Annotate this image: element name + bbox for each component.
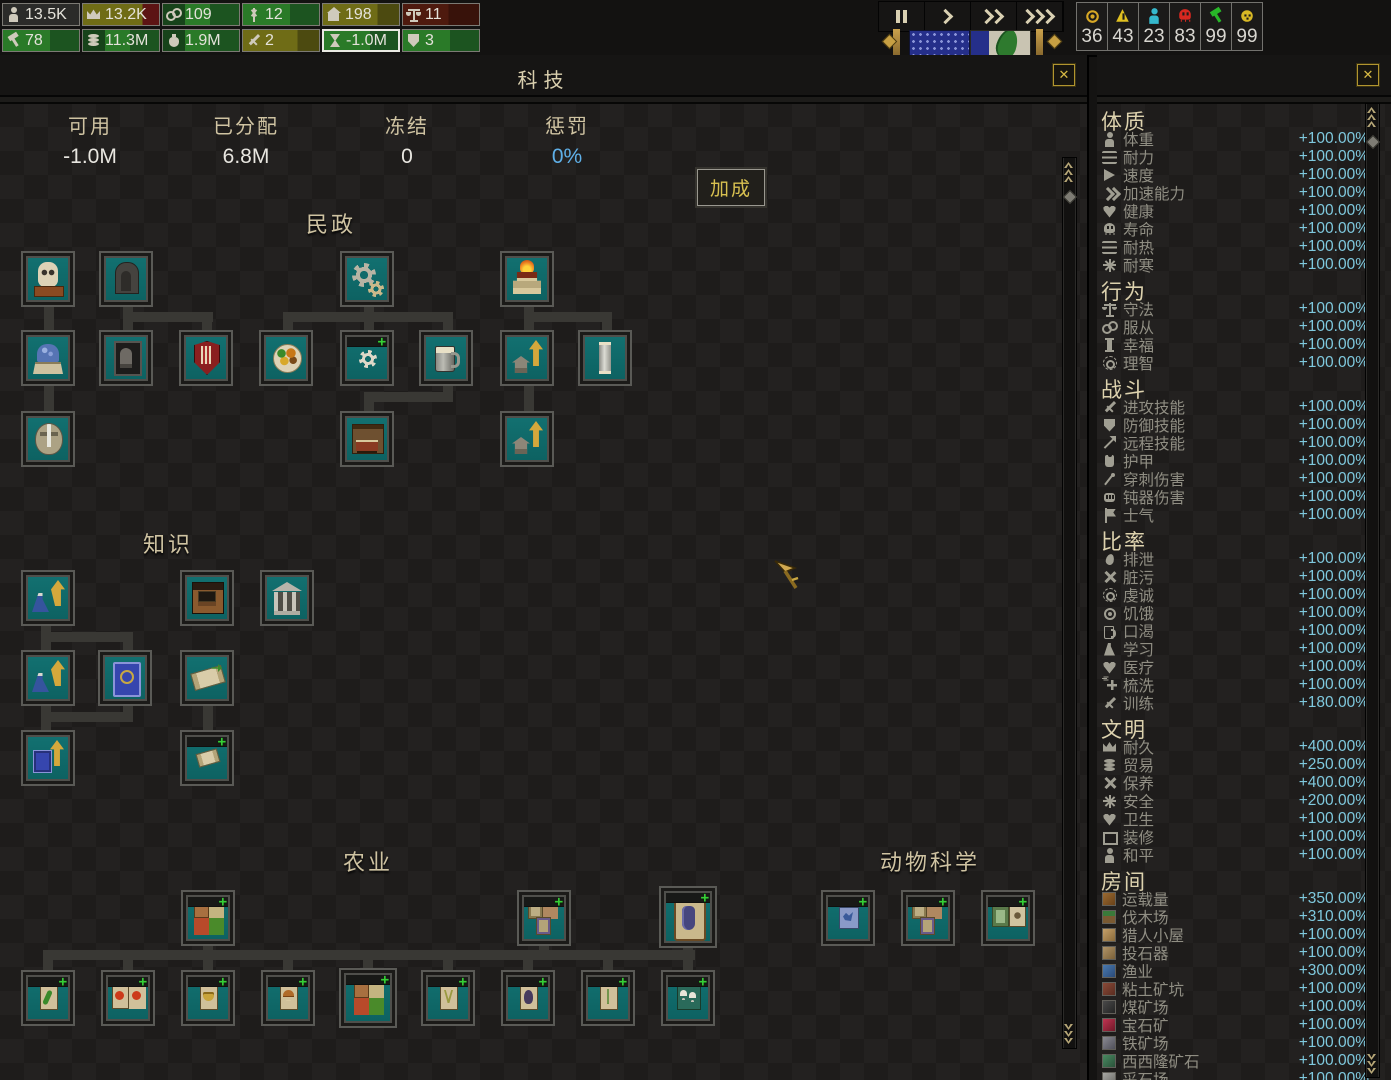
sun-icon	[1102, 356, 1117, 371]
resource-value: 198	[345, 6, 372, 24]
resource-value: 12	[265, 6, 283, 24]
resource-value: 13.5K	[25, 6, 67, 24]
rings-icon	[1102, 320, 1117, 335]
unlock-plus-icon: +	[139, 975, 147, 990]
fast-icon[interactable]	[971, 2, 1017, 31]
bonus-label: 理智	[1123, 352, 1154, 374]
tech-node-home-upgrade-2[interactable]	[500, 411, 554, 467]
tree-connector	[123, 956, 133, 970]
shield-heart-icon	[406, 33, 421, 48]
sidebar-section-房间: 房间	[1097, 866, 1391, 890]
bonus-value: +100.00%	[1299, 658, 1369, 676]
tech-node-animal-pack[interactable]: +	[901, 890, 955, 946]
research-boost-1-icon	[29, 578, 67, 618]
tech-panel-header: 科技 ✕	[0, 55, 1087, 97]
banner-diamond-right	[1047, 34, 1063, 50]
bonus-row: 耐寒+100.00%	[1097, 256, 1391, 274]
sisilon-room-icon	[1102, 1054, 1116, 1068]
sidebar-scrollbar[interactable]	[1365, 103, 1380, 1078]
tech-node-big-crop[interactable]: +	[659, 886, 717, 948]
stat-1: 已分配6.8M	[176, 110, 316, 169]
research-boost-2-icon	[29, 658, 67, 698]
bonus-value: +250.00%	[1299, 756, 1369, 774]
stat-value: -1.0M	[20, 145, 160, 169]
sidebar-section-体质: 体质	[1097, 106, 1391, 130]
unlock-plus-icon: +	[378, 335, 386, 350]
bonus-value: +100.00%	[1299, 1034, 1369, 1052]
scales-icon	[406, 7, 421, 22]
cuisine-icon	[267, 338, 305, 378]
panel-title: 科技	[0, 64, 1087, 93]
tree-connector	[683, 956, 693, 970]
aster-icon	[1102, 258, 1117, 273]
tree-connector	[443, 316, 453, 330]
machinery-icon	[348, 259, 386, 299]
bonus-value: +100.00%	[1299, 622, 1369, 640]
bonus-value: +100.00%	[1299, 980, 1369, 998]
school-icon	[188, 578, 226, 618]
frame-icon	[1102, 830, 1117, 845]
happiness-icon	[1239, 8, 1255, 24]
bonus-value: +100.00%	[1299, 488, 1369, 506]
tech-node-book-upgrade[interactable]	[21, 730, 75, 786]
bonus-value: +100.00%	[1299, 416, 1369, 434]
tree-connector	[364, 392, 453, 402]
sidebar-section-行为: 行为	[1097, 276, 1391, 300]
person-icon	[6, 7, 21, 22]
resource-hammer[interactable]: 78	[2, 29, 80, 52]
tech-node-cuisine[interactable]	[259, 330, 313, 386]
heart-icon	[1102, 812, 1117, 827]
bonus-value: +100.00%	[1299, 1016, 1369, 1034]
fountain-icon	[29, 338, 67, 378]
bonus-value: +100.00%	[1299, 506, 1369, 524]
tech-node-crop-grain[interactable]: +	[181, 970, 235, 1026]
altar-icon	[508, 259, 546, 299]
tech-node-animal-blue[interactable]: +	[821, 890, 875, 946]
bonus-row: 理智+100.00%	[1097, 354, 1391, 372]
wood-room-icon	[1102, 910, 1116, 924]
unlock-plus-icon: +	[555, 895, 563, 910]
alert-count: 36	[1077, 26, 1107, 48]
alert-count: 43	[1108, 26, 1138, 48]
tech-node-furniture[interactable]	[340, 411, 394, 467]
tech-node-crop-mushroom[interactable]: +	[261, 970, 315, 1026]
sidebar-section-文明: 文明	[1097, 714, 1391, 738]
tech-node-library[interactable]	[260, 570, 314, 626]
tech-node-crop-mix[interactable]: +	[339, 968, 397, 1028]
tree-connector	[524, 386, 534, 411]
section-title-民政: 民政	[306, 207, 356, 239]
gem-room-icon	[1102, 1018, 1116, 1032]
resource-person[interactable]: 13.5K	[2, 3, 80, 26]
crown-icon	[86, 7, 101, 22]
tech-node-throne[interactable]	[99, 251, 153, 307]
sidebar-close-icon[interactable]: ✕	[1357, 64, 1379, 86]
resource-value: 3	[425, 32, 434, 50]
tree-connector	[602, 316, 612, 330]
bonus-value: +100.00%	[1299, 550, 1369, 568]
bonus-value: +100.00%	[1299, 998, 1369, 1016]
section-title-知识: 知识	[143, 527, 193, 559]
plus-icon	[1102, 678, 1117, 693]
tree-connector	[203, 956, 213, 970]
bonus-value: +350.00%	[1299, 890, 1369, 908]
warning-icon	[1115, 8, 1131, 24]
resource-value: 1.9M	[185, 32, 221, 50]
citizen-icon	[1146, 8, 1162, 24]
stat-2: 冻结0	[337, 110, 477, 169]
sidebar-scroll-up-icon[interactable]	[1367, 107, 1376, 127]
tech-node-scroll-unlock[interactable]: +	[180, 730, 234, 786]
bonus-value: +400.00%	[1299, 774, 1369, 792]
tree-connector	[283, 316, 293, 330]
flag-icon	[1102, 508, 1117, 523]
red-banner-icon	[187, 338, 225, 378]
bonus-row: 和平+100.00%	[1097, 846, 1391, 864]
tree-connector	[443, 956, 453, 970]
bonus-value: +100.00%	[1299, 470, 1369, 488]
tech-node-animal-scrolls[interactable]: +	[981, 890, 1035, 946]
tech-node-masks[interactable]	[21, 251, 75, 307]
top-resource-bar: 13.5K13.2K1091219811 7811.3M1.9M2-1.0M3 …	[0, 0, 1391, 57]
bonus-value: +100.00%	[1299, 398, 1369, 416]
unlock-plus-icon: +	[59, 975, 67, 990]
bonus-value: +100.00%	[1299, 130, 1369, 148]
death-skull-icon	[1177, 8, 1193, 24]
needle-icon	[1102, 472, 1117, 487]
resource-value: 109	[185, 6, 212, 24]
tech-node-fountain[interactable]	[21, 330, 75, 386]
tech-node-guard[interactable]	[21, 411, 75, 467]
tech-node-research-boost-1[interactable]	[21, 570, 75, 626]
tech-node-crops-pack[interactable]: +	[181, 890, 235, 946]
resource-crown[interactable]: 13.2K	[82, 3, 160, 26]
coin-medal-icon	[1084, 8, 1100, 24]
shield-icon	[1102, 418, 1117, 433]
unlock-plus-icon: +	[859, 895, 867, 910]
drop-icon	[1102, 552, 1117, 567]
mug-icon	[1102, 624, 1117, 639]
bonus-value: +100.00%	[1299, 354, 1369, 372]
heart-icon	[1102, 660, 1117, 675]
hunter-room-icon	[1102, 928, 1116, 942]
bonus-value: +100.00%	[1299, 676, 1369, 694]
pillar-icon	[586, 338, 624, 378]
bonus-value: +100.00%	[1299, 604, 1369, 622]
resource-value: 11.3M	[105, 32, 148, 50]
sidebar-scroll-down-icon[interactable]	[1367, 1054, 1376, 1074]
unlock-plus-icon: +	[939, 895, 947, 910]
bonus-value: +100.00%	[1299, 846, 1369, 864]
tech-node-school[interactable]	[180, 570, 234, 626]
sidebar-header: ✕	[1097, 55, 1391, 97]
stat-3: 惩罚0%	[497, 110, 637, 169]
bonus-value: +100.00%	[1299, 828, 1369, 846]
armor-icon	[1102, 454, 1117, 469]
speed-controls	[878, 1, 1064, 32]
resource-shield-heart[interactable]: 3	[402, 29, 480, 52]
alert-coin-medal[interactable]: 36	[1076, 2, 1108, 51]
tech-panel: 科技 ✕ 可用-1.0M已分配6.8M冻结0惩罚0% 加成 民政知识农业动物科学…	[0, 55, 1089, 1080]
tool-icon	[1208, 8, 1224, 24]
tech-node-altar[interactable]	[500, 251, 554, 307]
banner-flag-leaf	[970, 30, 1031, 57]
tree-connector	[41, 712, 133, 722]
resource-value: 2	[265, 32, 274, 50]
tri-icon	[1102, 168, 1117, 183]
scale-icon	[1102, 302, 1117, 317]
tree-connector	[123, 705, 133, 720]
tree-connector	[364, 398, 374, 411]
sidebar-scroll-thumb[interactable]	[1365, 135, 1379, 149]
crate-room-icon	[1102, 892, 1116, 906]
bonus-list: 体质体重+100.00%耐力+100.00%速度+100.00%加速能力+100…	[1097, 104, 1391, 1080]
sword-icon	[1102, 400, 1117, 415]
waves-icon	[1102, 151, 1117, 164]
tech-node-crop-cucumber[interactable]: +	[21, 970, 75, 1026]
tree-connector	[523, 956, 533, 970]
resource-value: 11	[425, 6, 442, 24]
bonus-value: +100.00%	[1299, 166, 1369, 184]
pause-icon[interactable]	[879, 2, 925, 31]
unlock-plus-icon: +	[219, 895, 227, 910]
tree-connector	[283, 956, 293, 970]
chev2-icon	[1102, 186, 1117, 201]
tech-node-herb-pack[interactable]: +	[517, 890, 571, 946]
fist-icon	[1102, 490, 1117, 505]
resource-coins[interactable]: 11.3M	[82, 29, 160, 52]
resource-house[interactable]: 198	[322, 3, 400, 26]
bonus-value: +310.00%	[1299, 908, 1369, 926]
bonus-value: +100.00%	[1299, 810, 1369, 828]
tech-node-crop-aubergine[interactable]: +	[501, 970, 555, 1026]
resource-scales[interactable]: 11	[402, 3, 480, 26]
tome-icon	[106, 658, 144, 698]
bonus-value: +100.00%	[1299, 202, 1369, 220]
bonus-value: +100.00%	[1299, 944, 1369, 962]
resource-value: -1.0M	[346, 32, 387, 50]
section-title-动物科学: 动物科学	[880, 845, 980, 877]
unlock-plus-icon: +	[619, 975, 627, 990]
scroll-icon	[188, 658, 226, 698]
iron-room-icon	[1102, 1036, 1116, 1050]
unlock-plus-icon: +	[381, 973, 389, 988]
throne-icon	[107, 259, 145, 299]
scroll-down-icon[interactable]	[1064, 1024, 1073, 1044]
bonus-label: 采石场	[1122, 1068, 1169, 1080]
tech-node-crop-fungi[interactable]: +	[661, 970, 715, 1026]
coal-room-icon	[1102, 1000, 1116, 1014]
resource-value: 78	[25, 32, 43, 50]
hammer-icon	[6, 33, 21, 48]
alert-count: 23	[1139, 26, 1169, 48]
chain-icon	[166, 7, 181, 22]
stat-0: 可用-1.0M	[20, 110, 160, 169]
sword-icon	[246, 33, 261, 48]
bonus-value: +100.00%	[1299, 256, 1369, 274]
unlock-plus-icon: +	[1019, 895, 1027, 910]
brewing-icon	[427, 338, 465, 378]
tech-node-crop-herb[interactable]: +	[421, 970, 475, 1026]
tree-connector	[41, 632, 133, 642]
tree-scrollbar[interactable]	[1062, 157, 1077, 1049]
scroll-up-icon[interactable]	[1064, 162, 1073, 182]
resource-wheat[interactable]: 12	[242, 3, 320, 26]
coins-icon	[86, 33, 101, 48]
house-icon	[326, 7, 341, 22]
alert-count: 99	[1201, 26, 1231, 48]
fish-room-icon	[1102, 964, 1116, 978]
resource-pouch[interactable]: 1.9M	[162, 29, 240, 52]
tree-connector	[123, 312, 213, 322]
unlock-plus-icon: +	[218, 735, 226, 750]
resource-chain[interactable]: 109	[162, 3, 240, 26]
bonus-label: 训练	[1123, 692, 1154, 714]
play-icon[interactable]	[925, 2, 971, 31]
book-upgrade-icon	[29, 738, 67, 778]
tree-connector	[202, 316, 212, 330]
coin-icon	[1102, 606, 1117, 621]
x-icon	[1102, 570, 1117, 585]
bonus-value: +100.00%	[1299, 300, 1369, 318]
bonus-value: +100.00%	[1299, 926, 1369, 944]
section-title-农业: 农业	[343, 845, 393, 877]
wheat-icon	[246, 7, 261, 22]
skull-icon	[1102, 222, 1117, 237]
bonus-label: 士气	[1123, 504, 1154, 526]
tech-node-red-banner[interactable]	[179, 330, 233, 386]
alert-tool[interactable]: 99	[1200, 2, 1232, 51]
bonus-value: +100.00%	[1299, 434, 1369, 452]
bonus-value: +100.00%	[1299, 184, 1369, 202]
unlock-plus-icon: +	[219, 975, 227, 990]
alert-citizen[interactable]: 23	[1138, 2, 1170, 51]
x-icon	[1102, 776, 1117, 791]
hourglass-icon	[327, 33, 342, 48]
home-upgrade-2-icon	[508, 419, 546, 459]
alert-count: 83	[1170, 26, 1200, 48]
tech-node-research-boost-2[interactable]	[21, 650, 75, 706]
bonus-value: +180.00%	[1299, 694, 1369, 712]
bonus-value: +100.00%	[1299, 336, 1369, 354]
tomb-icon	[107, 338, 145, 378]
stat-label: 冻结	[337, 110, 477, 139]
alert-happiness[interactable]: 99	[1231, 2, 1263, 51]
stat-label: 已分配	[176, 110, 316, 139]
tech-node-tome[interactable]	[98, 650, 152, 706]
tree-connector	[524, 312, 612, 322]
stat-label: 可用	[20, 110, 160, 139]
guard-icon	[29, 419, 67, 459]
bonus-value: +100.00%	[1299, 640, 1369, 658]
stat-value: 0	[337, 145, 477, 169]
leaf-icon	[993, 30, 1021, 57]
pouch-icon	[166, 33, 181, 48]
fastest-icon[interactable]	[1017, 2, 1063, 31]
tree-connector	[44, 386, 54, 411]
bonus-button[interactable]: 加成	[697, 169, 765, 206]
unlock-plus-icon: +	[539, 975, 547, 990]
bonus-sidebar: ✕ 体质体重+100.00%耐力+100.00%速度+100.00%加速能力+1…	[1097, 55, 1391, 1080]
tree-scroll-thumb[interactable]	[1062, 190, 1076, 204]
bonus-value: +300.00%	[1299, 962, 1369, 980]
aster-icon	[1102, 794, 1117, 809]
bonus-value: +100.00%	[1299, 1052, 1369, 1070]
tech-node-machinery[interactable]	[340, 251, 394, 307]
catapult-room-icon	[1102, 946, 1116, 960]
bonus-value: +100.00%	[1299, 586, 1369, 604]
close-icon[interactable]: ✕	[1053, 64, 1075, 86]
coins-icon	[1102, 758, 1117, 773]
bonus-value: +100.00%	[1299, 220, 1369, 238]
masks-icon	[29, 259, 67, 299]
stat-label: 惩罚	[497, 110, 637, 139]
unlock-plus-icon: +	[699, 975, 707, 990]
quarry-room-icon	[1102, 1072, 1116, 1080]
banner-flag-blue	[909, 30, 970, 57]
pillar-icon	[1102, 338, 1117, 353]
resource-sword[interactable]: 2	[242, 29, 320, 52]
tech-node-scroll[interactable]	[180, 650, 234, 706]
tech-node-crop-sprig[interactable]: +	[581, 970, 635, 1026]
alert-count: 99	[1232, 26, 1262, 48]
clay-room-icon	[1102, 982, 1116, 996]
flask-icon	[1102, 642, 1117, 657]
bonus-row: 训练+180.00%	[1097, 694, 1391, 712]
tech-node-home-upgrade-1[interactable]	[500, 330, 554, 386]
person-icon	[1102, 848, 1117, 863]
tree-connector	[283, 312, 453, 322]
home-upgrade-1-icon	[508, 338, 546, 378]
alert-death-skull[interactable]: 83	[1169, 2, 1201, 51]
tech-node-workshop[interactable]: +	[340, 330, 394, 386]
furniture-icon	[348, 419, 386, 459]
alert-warning[interactable]: 43	[1107, 2, 1139, 51]
bonus-row: 采石场+100.00%	[1097, 1070, 1391, 1080]
bonus-value: +400.00%	[1299, 738, 1369, 756]
bonus-label: 和平	[1123, 844, 1154, 866]
stat-value: 0%	[497, 145, 637, 169]
tech-node-pillar[interactable]	[578, 330, 632, 386]
bonus-value: +100.00%	[1299, 452, 1369, 470]
banner-post-right	[1036, 29, 1043, 55]
tech-node-brewing[interactable]	[419, 330, 473, 386]
unlock-plus-icon: +	[701, 891, 709, 906]
bonus-value: +100.00%	[1299, 318, 1369, 336]
sidebar-section-比率: 比率	[1097, 526, 1391, 550]
tech-node-crop-fruit[interactable]: +	[101, 970, 155, 1026]
tree-connector	[43, 956, 53, 970]
bonus-label: 耐寒	[1123, 254, 1154, 276]
bonus-value: +100.00%	[1299, 1070, 1369, 1080]
tech-node-tomb[interactable]	[99, 330, 153, 386]
heart-icon	[1102, 204, 1117, 219]
bonus-value: +200.00%	[1299, 792, 1369, 810]
crown-icon	[1102, 740, 1117, 755]
tree-connector	[203, 705, 213, 731]
bonus-row: 士气+100.00%	[1097, 506, 1391, 524]
arrow-icon	[1102, 436, 1117, 451]
unlock-plus-icon: +	[459, 975, 467, 990]
bonus-value: +100.00%	[1299, 238, 1369, 256]
resource-hourglass[interactable]: -1.0M	[322, 29, 400, 52]
unlock-plus-icon: +	[299, 975, 307, 990]
waves-icon	[1102, 241, 1117, 254]
bonus-value: +100.00%	[1299, 568, 1369, 586]
sun-icon	[1102, 588, 1117, 603]
sidebar-section-战斗: 战斗	[1097, 374, 1391, 398]
